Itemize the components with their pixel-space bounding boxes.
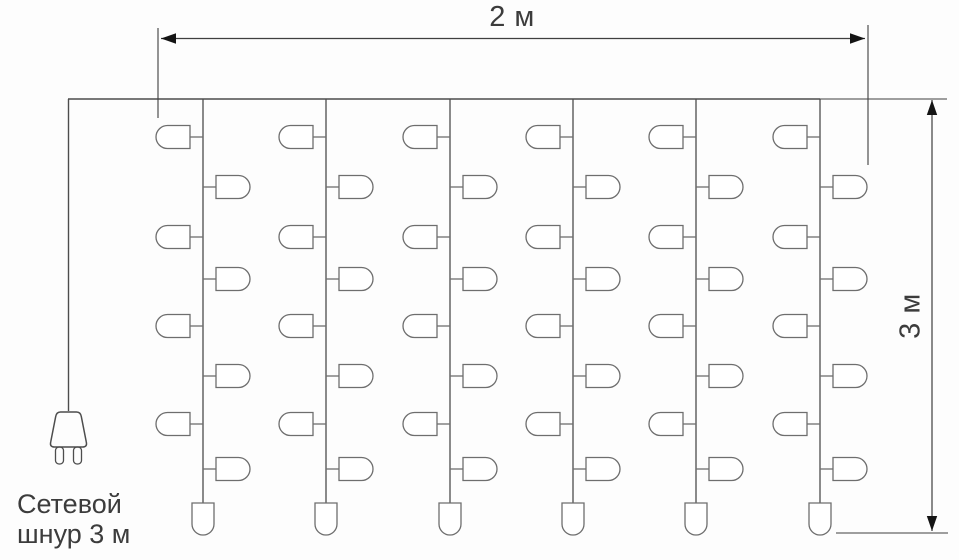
width-dimension-label: 2 м — [432, 1, 592, 34]
led-bulb-left — [279, 413, 313, 436]
led-bulb-right — [216, 365, 250, 388]
led-bulb-right — [833, 458, 867, 481]
led-bulb-left — [403, 226, 437, 249]
led-bulb-right — [586, 458, 620, 481]
led-bulb-end — [439, 503, 461, 535]
height-dimension-label: 3 м — [895, 293, 928, 339]
power-cord-label-line1: Сетевой — [17, 489, 130, 519]
led-bulb-right — [833, 268, 867, 291]
led-bulb-right — [833, 365, 867, 388]
led-bulb-right — [586, 176, 620, 199]
led-bulb-right — [216, 176, 250, 199]
led-bulb-left — [156, 226, 190, 249]
led-bulb-right — [709, 365, 743, 388]
led-bulb-left — [279, 226, 313, 249]
dimension-arrowhead-right — [850, 33, 865, 43]
led-bulb-end — [562, 503, 584, 535]
led-bulb-right — [709, 268, 743, 291]
led-bulb-right — [216, 268, 250, 291]
led-bulb-left — [156, 413, 190, 436]
led-bulb-left — [526, 413, 560, 436]
dimension-arrowhead-left — [161, 33, 176, 43]
led-bulb-right — [339, 176, 373, 199]
led-bulb-left — [403, 413, 437, 436]
curtain-schematic — [0, 0, 959, 560]
led-bulb-left — [649, 413, 683, 436]
led-bulb-right — [709, 458, 743, 481]
led-bulb-right — [339, 268, 373, 291]
plug-prong — [56, 447, 64, 464]
led-bulb-left — [773, 126, 807, 149]
dimension-arrowhead-down — [927, 516, 937, 531]
led-bulb-right — [709, 176, 743, 199]
led-bulb-left — [403, 126, 437, 149]
led-bulb-right — [586, 365, 620, 388]
led-bulb-end — [809, 503, 831, 535]
led-bulb-left — [526, 315, 560, 338]
led-bulb-left — [649, 315, 683, 338]
led-bulb-left — [156, 126, 190, 149]
led-bulb-left — [773, 226, 807, 249]
led-bulb-right — [339, 458, 373, 481]
led-bulb-left — [773, 413, 807, 436]
led-bulb-left — [649, 226, 683, 249]
plug-prong — [74, 447, 82, 464]
power-cord-label: Сетевой шнур 3 м — [17, 489, 130, 549]
led-bulb-end — [685, 503, 707, 535]
led-bulb-right — [586, 268, 620, 291]
led-bulb-right — [463, 365, 497, 388]
led-bulb-right — [463, 458, 497, 481]
led-bulb-left — [279, 126, 313, 149]
led-bulb-right — [833, 176, 867, 199]
led-bulb-left — [773, 315, 807, 338]
led-bulb-right — [216, 458, 250, 481]
led-bulb-right — [463, 268, 497, 291]
led-bulb-left — [156, 315, 190, 338]
power-cord-label-line2: шнур 3 м — [17, 519, 130, 549]
led-bulb-right — [463, 176, 497, 199]
led-bulb-right — [339, 365, 373, 388]
power-plug-icon — [50, 412, 86, 447]
led-bulb-left — [279, 315, 313, 338]
led-bulb-left — [526, 226, 560, 249]
led-bulb-left — [403, 315, 437, 338]
led-bulb-end — [315, 503, 337, 535]
dimension-arrowhead-up — [927, 100, 937, 115]
led-bulb-left — [526, 126, 560, 149]
led-bulb-end — [192, 503, 214, 535]
led-bulb-left — [649, 126, 683, 149]
led-curtain-diagram: 2 м 3 м Сетевой шнур 3 м — [0, 0, 959, 560]
